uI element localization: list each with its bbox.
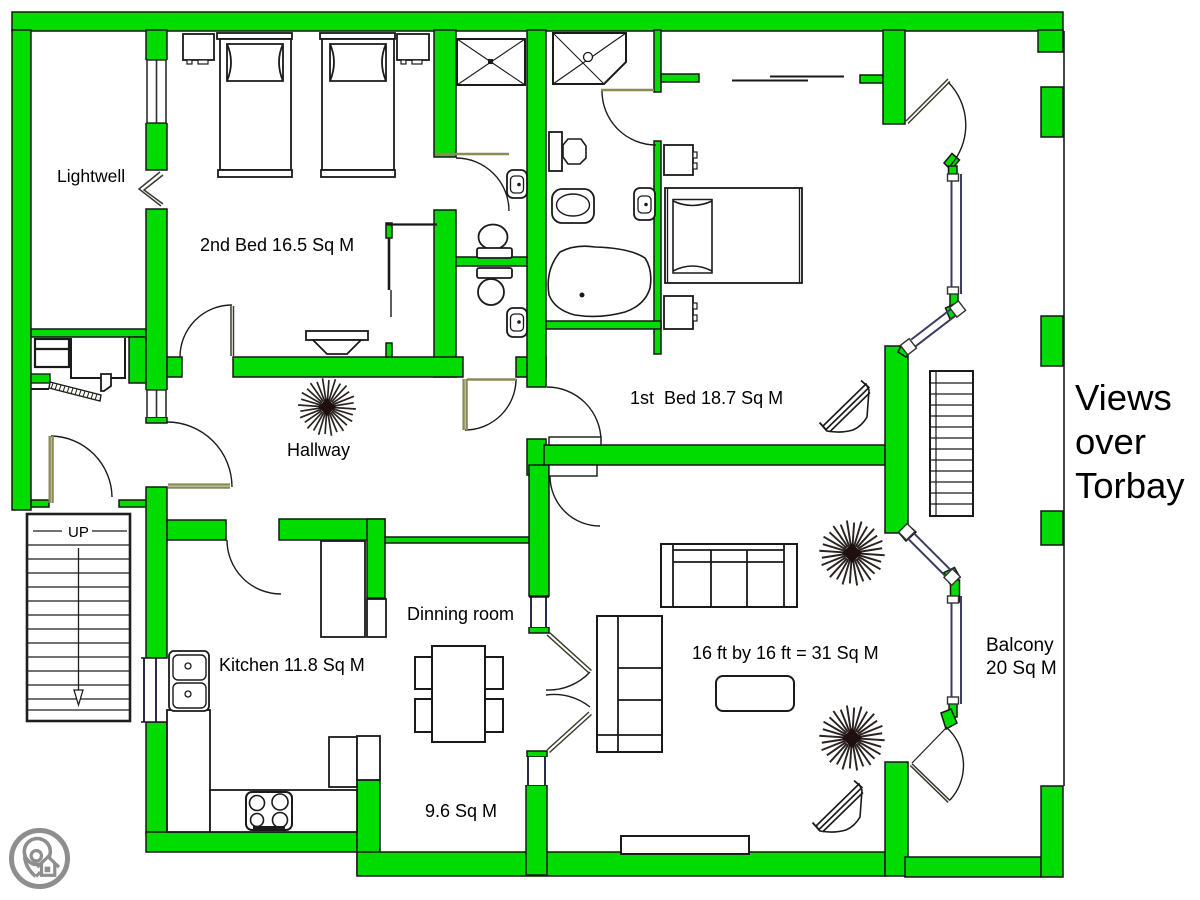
svg-text:over: over	[1075, 421, 1146, 462]
svg-text:UP: UP	[68, 524, 89, 541]
svg-text:20 Sq M: 20 Sq M	[986, 658, 1057, 679]
svg-text:Kitchen 11.8 Sq M: Kitchen 11.8 Sq M	[219, 655, 365, 675]
svg-text:2nd Bed 16.5 Sq M: 2nd Bed 16.5 Sq M	[200, 235, 354, 255]
svg-text:Lightwell: Lightwell	[57, 166, 125, 186]
svg-text:Views: Views	[1075, 377, 1172, 418]
svg-text:Torbay: Torbay	[1075, 465, 1185, 506]
svg-text:1st Bed 18.7 Sq M: 1st Bed 18.7 Sq M	[630, 388, 783, 408]
svg-text:Balcony: Balcony	[986, 635, 1054, 656]
svg-text:Hallway: Hallway	[287, 440, 350, 460]
svg-text:Dinning room: Dinning room	[407, 604, 514, 624]
svg-text:9.6 Sq M: 9.6 Sq M	[425, 801, 497, 821]
svg-text:16 ft by 16 ft = 31 Sq M: 16 ft by 16 ft = 31 Sq M	[692, 643, 879, 663]
